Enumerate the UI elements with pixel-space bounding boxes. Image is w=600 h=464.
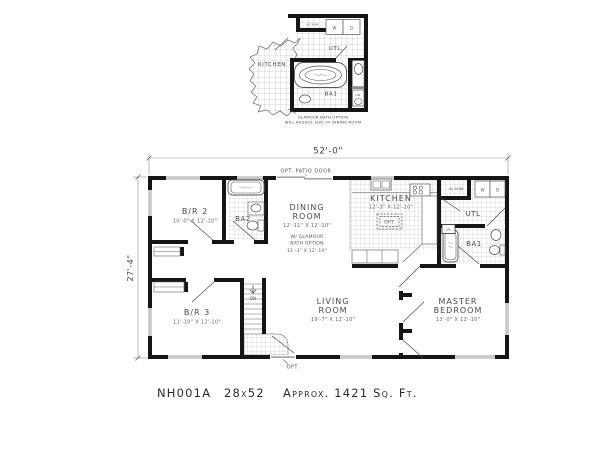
ba1-toilet-icon: [490, 246, 500, 255]
entry-note-leader: [283, 360, 288, 365]
inset-dryer-label: D: [350, 26, 353, 31]
inset-washer-dryer: [326, 20, 360, 35]
ba1-toilet-tank: [500, 245, 505, 255]
br2-dims: 10'-0" X 12'-10": [173, 219, 218, 225]
entry-note: OPT.: [286, 365, 299, 371]
dining-label-1: DINING: [289, 203, 324, 212]
inset-toilet-icon: [355, 99, 363, 105]
patio-door-note: OPT. PATIO DOOR: [280, 169, 331, 175]
br3-dims: 11'-10" X 12'-10": [173, 320, 221, 326]
window-br3-bottom: [168, 355, 202, 359]
height-dimension: [133, 175, 147, 361]
inset-vanity-sink-icon: [354, 64, 363, 75]
utility-label: UTL: [465, 210, 480, 218]
window-br2-top: [166, 176, 200, 180]
inset-washer-label: W: [333, 26, 337, 31]
inset-bath-label: BA1: [325, 92, 338, 98]
dining-dims: 12'-11" X 12'-10": [283, 223, 331, 229]
inset-utility-label: UTL.: [329, 46, 344, 52]
inset-linen-label: LIN.: [355, 93, 361, 97]
br3-label: B/R 3: [184, 308, 210, 317]
window-living-bottom: [340, 355, 372, 359]
inset-shower-label: 42 SHW: [307, 23, 319, 27]
washer-label: W: [481, 188, 485, 193]
inset-garden-tub-icon: [295, 63, 347, 88]
shower-label: 42 SHW: [449, 187, 464, 191]
master-label-2: BEDROOM: [434, 306, 483, 315]
dining-alt-dims: 11'-3" X 12'-10": [287, 248, 327, 254]
living-label-1: LIVING: [317, 297, 350, 306]
kitchen-island-label: OPT.: [384, 220, 395, 226]
stairs-label: DN: [250, 296, 256, 301]
kitchen-label: KITCHEN: [370, 194, 412, 203]
br2-label: B/R 2: [182, 207, 208, 216]
stairs: DN: [244, 284, 262, 329]
plan-size: 28x52: [224, 386, 265, 400]
dining-alt-note-1: W/ GLAMOUR: [290, 234, 324, 240]
kitchen-counter-bottom: [352, 250, 398, 263]
living-dims: 19'-7" X 12'-10": [311, 317, 356, 323]
master-label-1: MASTER: [439, 297, 478, 306]
window-br3-left: [148, 308, 152, 336]
floor-plan-sheet: W D LIN. KITCHEN UTL. 42 SHW BA1 GLAMOUR…: [0, 0, 600, 464]
hall-closets: [154, 247, 184, 292]
dining-alt-note-2: BATH OPTION: [290, 241, 323, 247]
optional-entry-door: [270, 355, 296, 359]
ba2-toilet-tank: [258, 220, 264, 231]
dryer-label: D: [496, 188, 499, 193]
inset-caption-line2: WILL REDUCE SIZE OF DINING ROOM: [285, 119, 362, 124]
window-ba2-top: [237, 176, 263, 180]
ba2-label: BA2: [235, 215, 251, 223]
ba1-label: BA1: [466, 240, 482, 248]
linen-label: LIN.: [446, 228, 452, 232]
window-br2-left: [148, 190, 152, 216]
dining-label-2: ROOM: [292, 212, 321, 221]
main-plan: 52'-0" 27'-4" OPT. PATIO DOOR: [126, 147, 511, 371]
ba1-sink-icon: [491, 230, 501, 241]
patio-door: [276, 176, 333, 180]
inset-kitchen-label: KITCHEN: [258, 62, 286, 68]
plan-title: NH001A 28x52 Approx. 1421 Sq. Ft.: [157, 386, 418, 400]
inset-sink-icon: [300, 95, 311, 103]
width-dimension-label: 52'-0": [313, 147, 343, 157]
height-dimension-label: 27'-4": [126, 254, 135, 281]
plan-area: Approx. 1421 Sq. Ft.: [283, 386, 418, 400]
ba2-sink-icon: [251, 204, 261, 212]
inset-plan: W D LIN. KITCHEN UTL. 42 SHW BA1 GLAMOUR…: [249, 14, 368, 124]
window-master-bottom: [455, 355, 495, 359]
plan-model: NH001A: [157, 386, 211, 400]
kitchen-dims: 12'-3" X 12'-10": [369, 205, 414, 211]
kitchen-counter-right: [422, 196, 437, 244]
window-master-right: [505, 303, 509, 335]
master-dims: 13'-0" X 12'-10": [436, 317, 481, 323]
floor-plan-drawing: W D LIN. KITCHEN UTL. 42 SHW BA1 GLAMOUR…: [0, 0, 600, 464]
utility-fixtures: [475, 181, 505, 197]
living-label-2: ROOM: [318, 306, 347, 315]
